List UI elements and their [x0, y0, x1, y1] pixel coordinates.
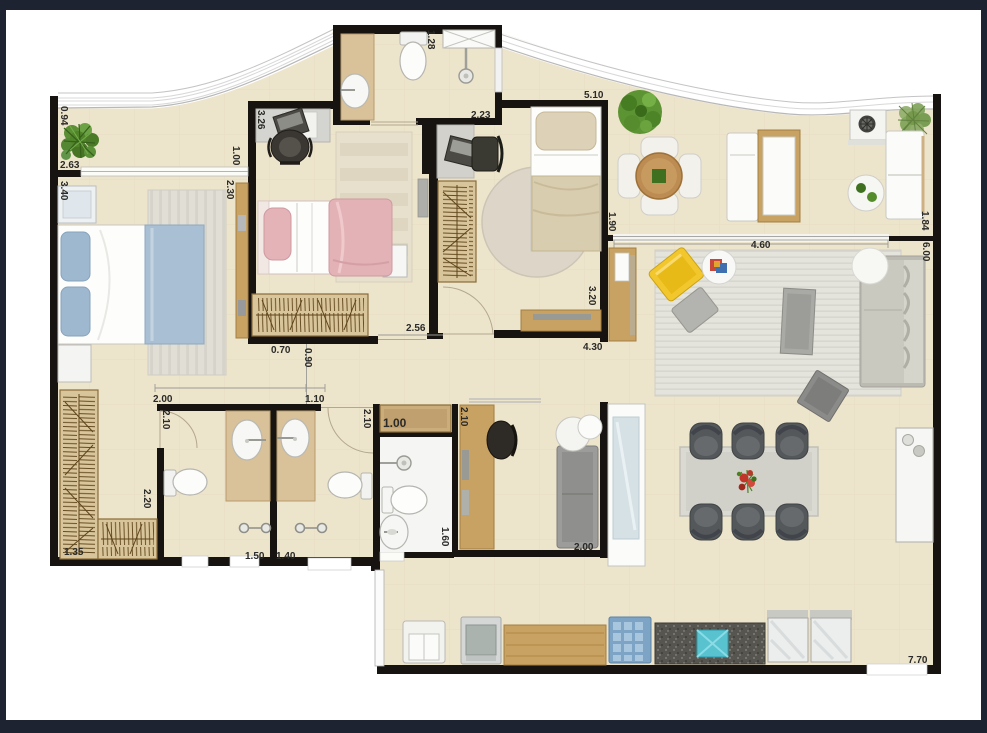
- svg-text:1.50: 1.50: [245, 551, 265, 562]
- svg-text:5.10: 5.10: [584, 90, 604, 101]
- svg-text:4.60: 4.60: [751, 240, 771, 251]
- svg-text:1.40: 1.40: [276, 551, 296, 562]
- svg-text:0.90: 0.90: [302, 348, 313, 368]
- svg-text:0.94: 0.94: [58, 106, 69, 126]
- svg-text:1.00: 1.00: [383, 416, 407, 430]
- svg-text:1.84: 1.84: [919, 211, 930, 231]
- svg-text:6.00: 6.00: [920, 242, 931, 262]
- svg-text:3.20: 3.20: [586, 286, 597, 306]
- svg-text:0.70: 0.70: [271, 345, 291, 356]
- svg-text:2.23: 2.23: [471, 110, 491, 121]
- svg-text:2.20: 2.20: [141, 489, 152, 509]
- svg-text:4.30: 4.30: [583, 342, 603, 353]
- svg-text:2.63: 2.63: [60, 160, 80, 171]
- svg-text:2.10: 2.10: [361, 409, 372, 429]
- svg-text:1.28: 1.28: [425, 30, 436, 50]
- svg-text:1.35: 1.35: [64, 547, 84, 558]
- svg-text:1.10: 1.10: [305, 394, 325, 405]
- svg-text:7.70: 7.70: [908, 655, 928, 666]
- svg-text:3.26: 3.26: [255, 110, 266, 130]
- svg-text:2.10: 2.10: [458, 407, 469, 427]
- svg-text:2.00: 2.00: [153, 394, 173, 405]
- svg-text:3.40: 3.40: [58, 181, 69, 201]
- svg-text:2.00: 2.00: [574, 542, 594, 553]
- svg-text:2.56: 2.56: [406, 323, 426, 334]
- svg-text:2.30: 2.30: [224, 180, 235, 200]
- svg-text:1.60: 1.60: [439, 527, 450, 547]
- svg-text:1.90: 1.90: [606, 212, 617, 232]
- svg-text:2.10: 2.10: [160, 410, 171, 430]
- svg-text:1.00: 1.00: [230, 146, 241, 166]
